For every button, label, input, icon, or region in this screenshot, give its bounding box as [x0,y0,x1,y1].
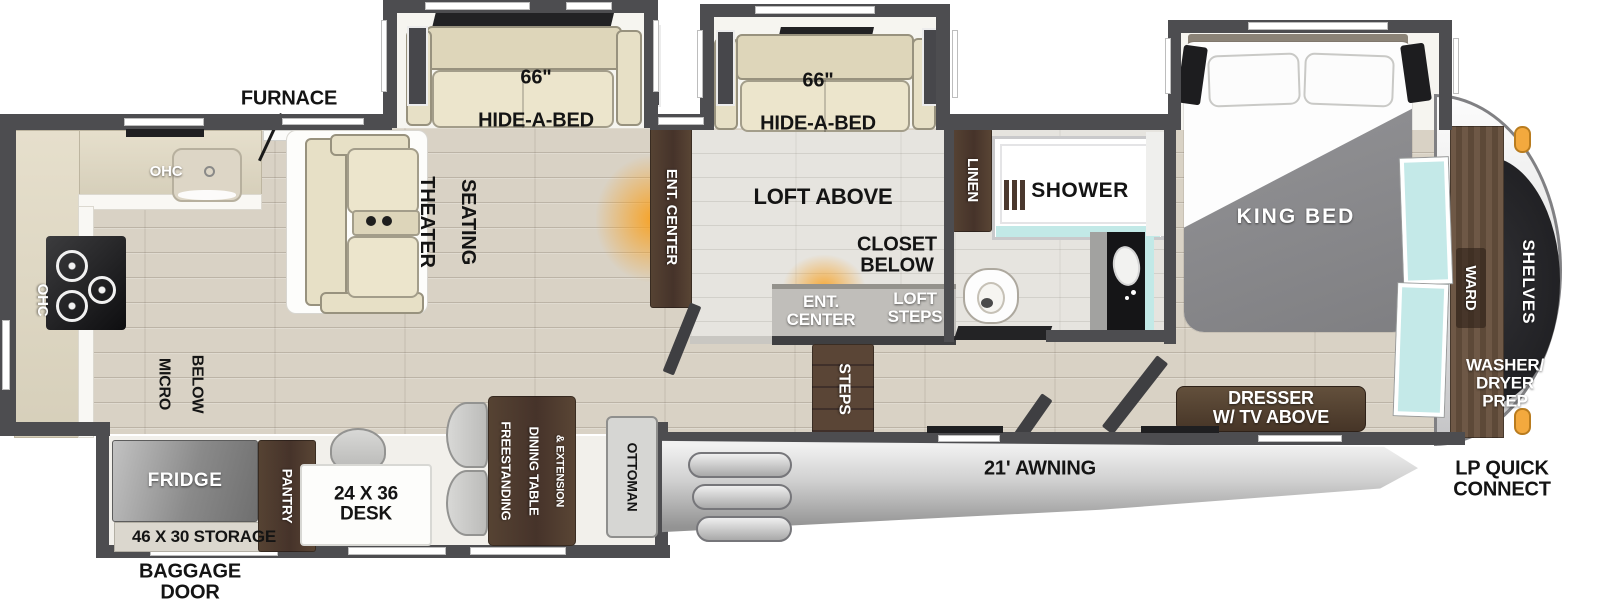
entry-steps [692,484,792,510]
pantry-label: PANTRY [280,469,295,524]
shower-head-icon [1020,180,1025,210]
wall-bath-bedroom [1164,130,1176,344]
theater-seating-label: SEATING THEATER [395,176,499,268]
desk-label: 24 X 36 DESK [334,485,398,526]
ohc-left-label: OHC [34,284,50,317]
baggage-door-label: BAGGAGE DOOR [139,562,241,605]
shelves-label: SHELVES [1519,239,1537,324]
window [1453,38,1459,94]
shower-head-icon [1004,180,1009,210]
dining-table-label: & EXTENSION DINING TABLE FREESTANDING [486,421,579,520]
hide-a-bed-left-arm [616,30,642,126]
loft-steps-label: LOFT STEPS [888,290,943,326]
shower-label: SHOWER [1031,180,1129,202]
window-awning [927,426,1003,433]
ohc-top-label: OHC [150,164,183,180]
kitchen-sink-lip [178,190,236,200]
loft-above-label: LOFT ABOVE [754,185,893,209]
wall-bath-top [944,114,1176,130]
marker-light-icon [1514,126,1531,153]
vanity-wall [1090,232,1107,340]
pillow [1207,52,1301,107]
toilet-bowl [977,282,1005,314]
slide-wall [936,4,950,130]
dining-chair [446,470,488,536]
window [282,118,364,125]
cupholder-icon [366,216,376,226]
dining-chair [446,402,488,468]
ent-center-label: ENT. CENTER [663,169,679,265]
window [952,30,958,98]
wardrobe-mirror [1394,283,1449,417]
furnace-label: FURNACE [241,88,337,109]
slide-window [716,30,735,106]
window [1258,435,1342,442]
burner-icon [88,276,116,304]
window [470,547,566,555]
window [938,435,1000,442]
burner-icon [56,250,88,282]
faucet-icon [1131,290,1136,295]
window [348,547,446,555]
slide-window [407,26,428,106]
linen-label: LINEN [964,158,980,202]
window [425,2,530,10]
sink-drain-icon [204,166,215,177]
hide-a-bed-right-label: 66" HIDE-A-BED [760,50,876,157]
ward-label: WARD [1462,265,1478,310]
theater-sofa-back [305,138,347,306]
bathroom-wall-filler [1146,132,1166,236]
awning-label: 21' AWNING [984,458,1096,479]
window-awning [1141,426,1219,433]
window [755,6,875,14]
cupholder-icon [382,216,392,226]
toilet-flush-icon [981,298,993,308]
rv-floorplan: FURNACE OHC OHC BELOW MICRO 66" HIDE-A-B… [0,0,1600,615]
lp-quick-connect-label: LP QUICK CONNECT [1453,459,1551,502]
micro-below-label: BELOW MICRO [138,355,221,414]
window [124,118,204,126]
ottoman-label: OTTOMAN [625,442,640,511]
closet-below-label: CLOSET BELOW [857,235,937,278]
dresser-label: DRESSER W/ TV ABOVE [1213,389,1329,428]
fridge-label: FRIDGE [148,471,223,491]
hide-a-bed-left-label: 66" HIDE-A-BED [478,47,594,154]
slide-wall [96,428,109,556]
entry-steps [688,452,792,478]
storage-label: 46 X 30 STORAGE [132,528,276,546]
entry-steps [696,516,792,542]
burner-icon [56,290,88,322]
window [2,320,10,390]
vanity-mirror-strip [1145,236,1154,338]
window [1248,22,1388,30]
faucet-icon [1125,296,1129,300]
window [658,117,704,125]
loft-floor-edge [690,336,772,344]
window-sill [126,129,204,137]
window [566,2,612,10]
marker-light-icon [1514,408,1531,435]
pillow [1303,52,1395,107]
window [697,30,703,98]
toilet-shelf [954,326,1053,340]
window [381,20,387,92]
wardrobe-mirror [1400,157,1452,285]
window [1165,38,1171,94]
wall-loft-bath [944,130,954,342]
wall-left-bottom [0,422,110,436]
wall-bath-bottom [1046,330,1176,342]
washer-dryer-label: WASHER/ DRYER PREP [1466,357,1544,412]
steps-label: STEPS [835,363,852,414]
shower-head-icon [1012,180,1017,210]
king-bed-label: KING BED [1237,206,1356,228]
slide-wall [1439,20,1452,130]
window [653,20,659,92]
loft-ent-center-label: ENT. CENTER [787,293,856,329]
